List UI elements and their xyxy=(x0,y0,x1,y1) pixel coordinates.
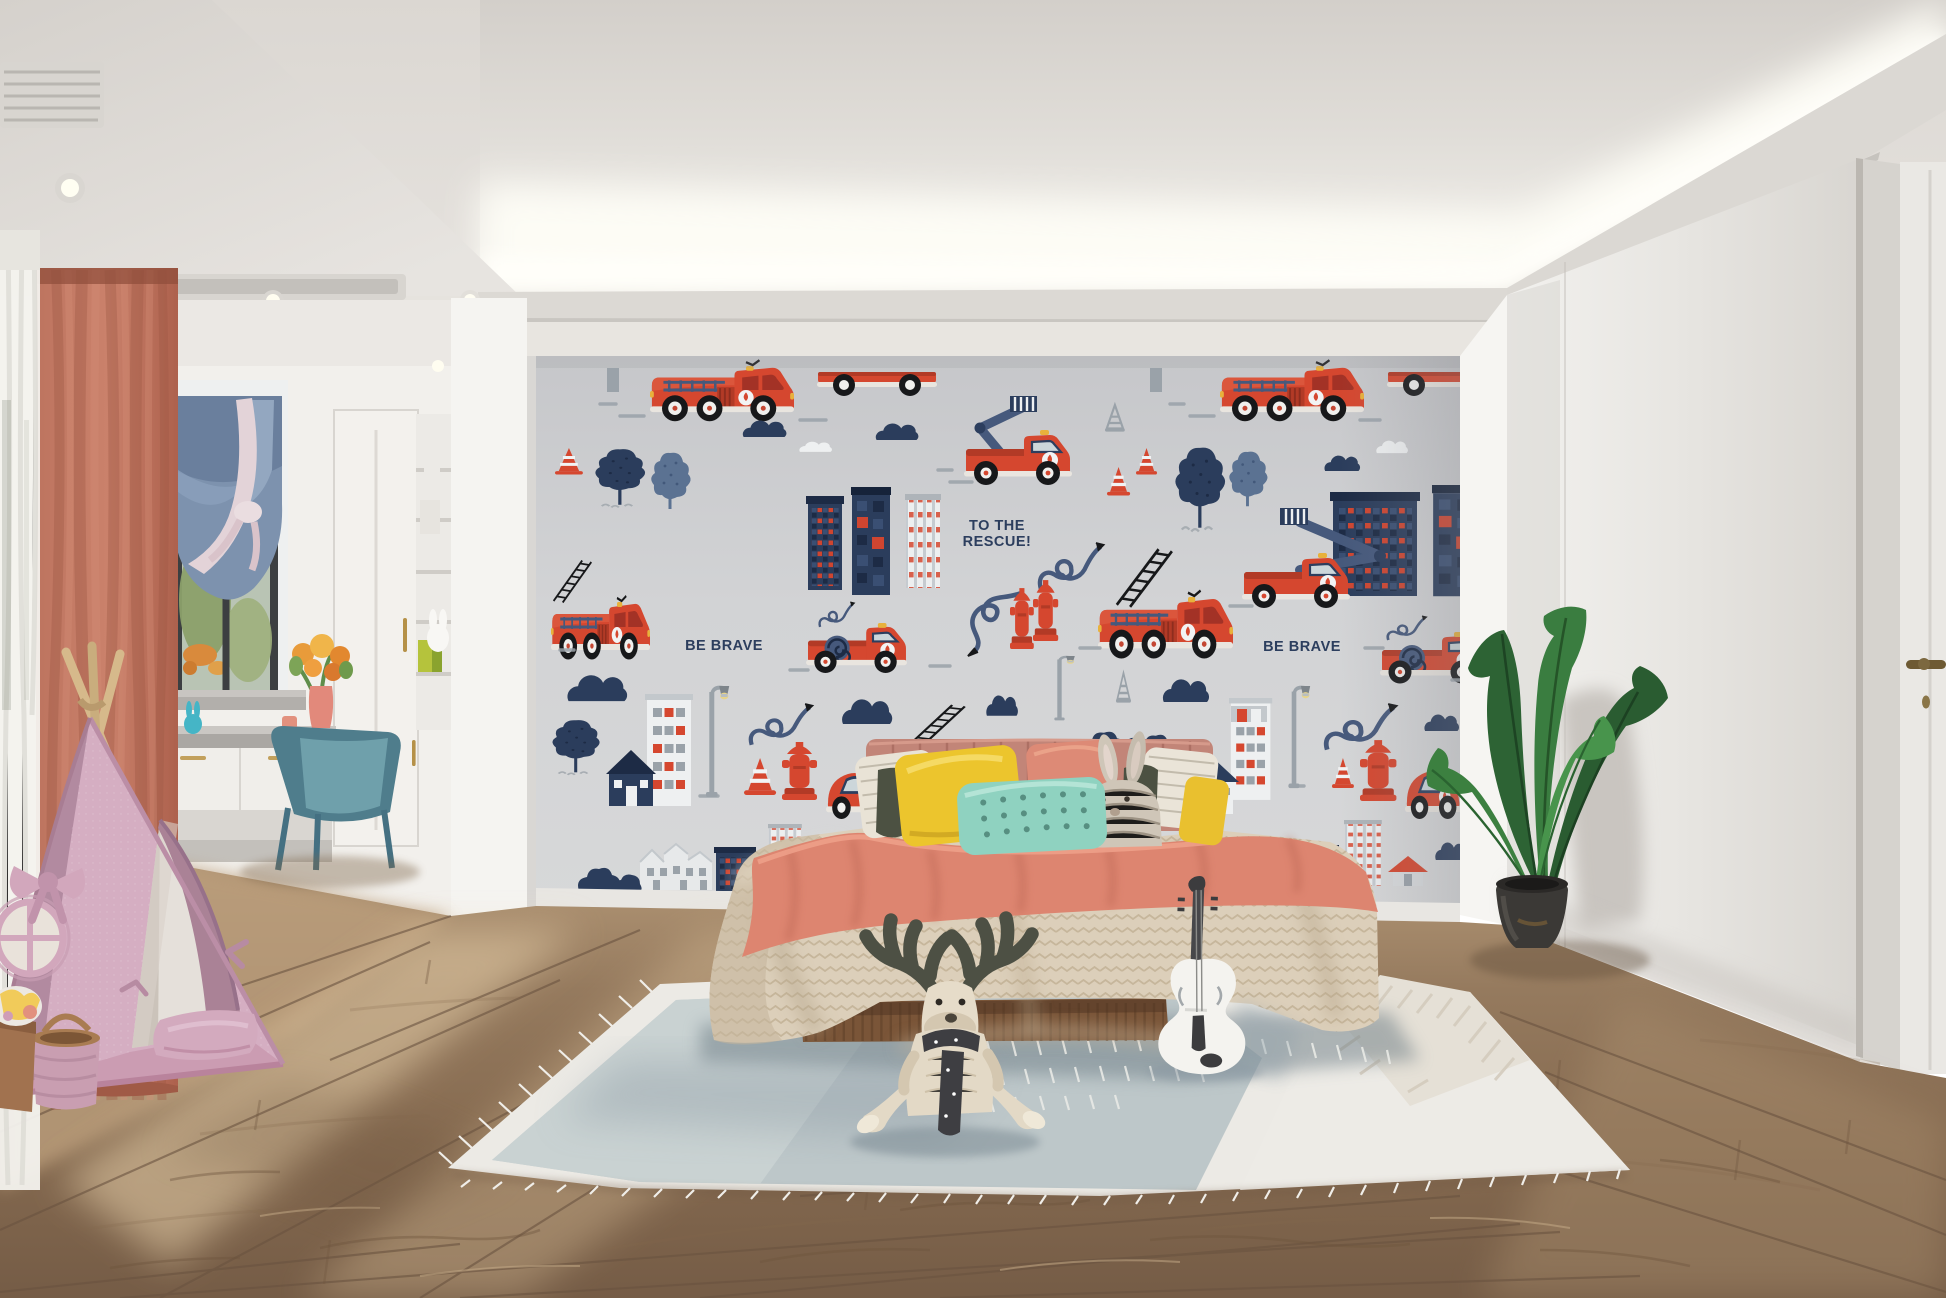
svg-text:TO THE: TO THE xyxy=(969,518,1025,534)
svg-text:RESCUE!: RESCUE! xyxy=(963,534,1032,550)
svg-text:BE BRAVE: BE BRAVE xyxy=(1263,639,1341,655)
svg-text:BE BRAVE: BE BRAVE xyxy=(685,638,763,654)
